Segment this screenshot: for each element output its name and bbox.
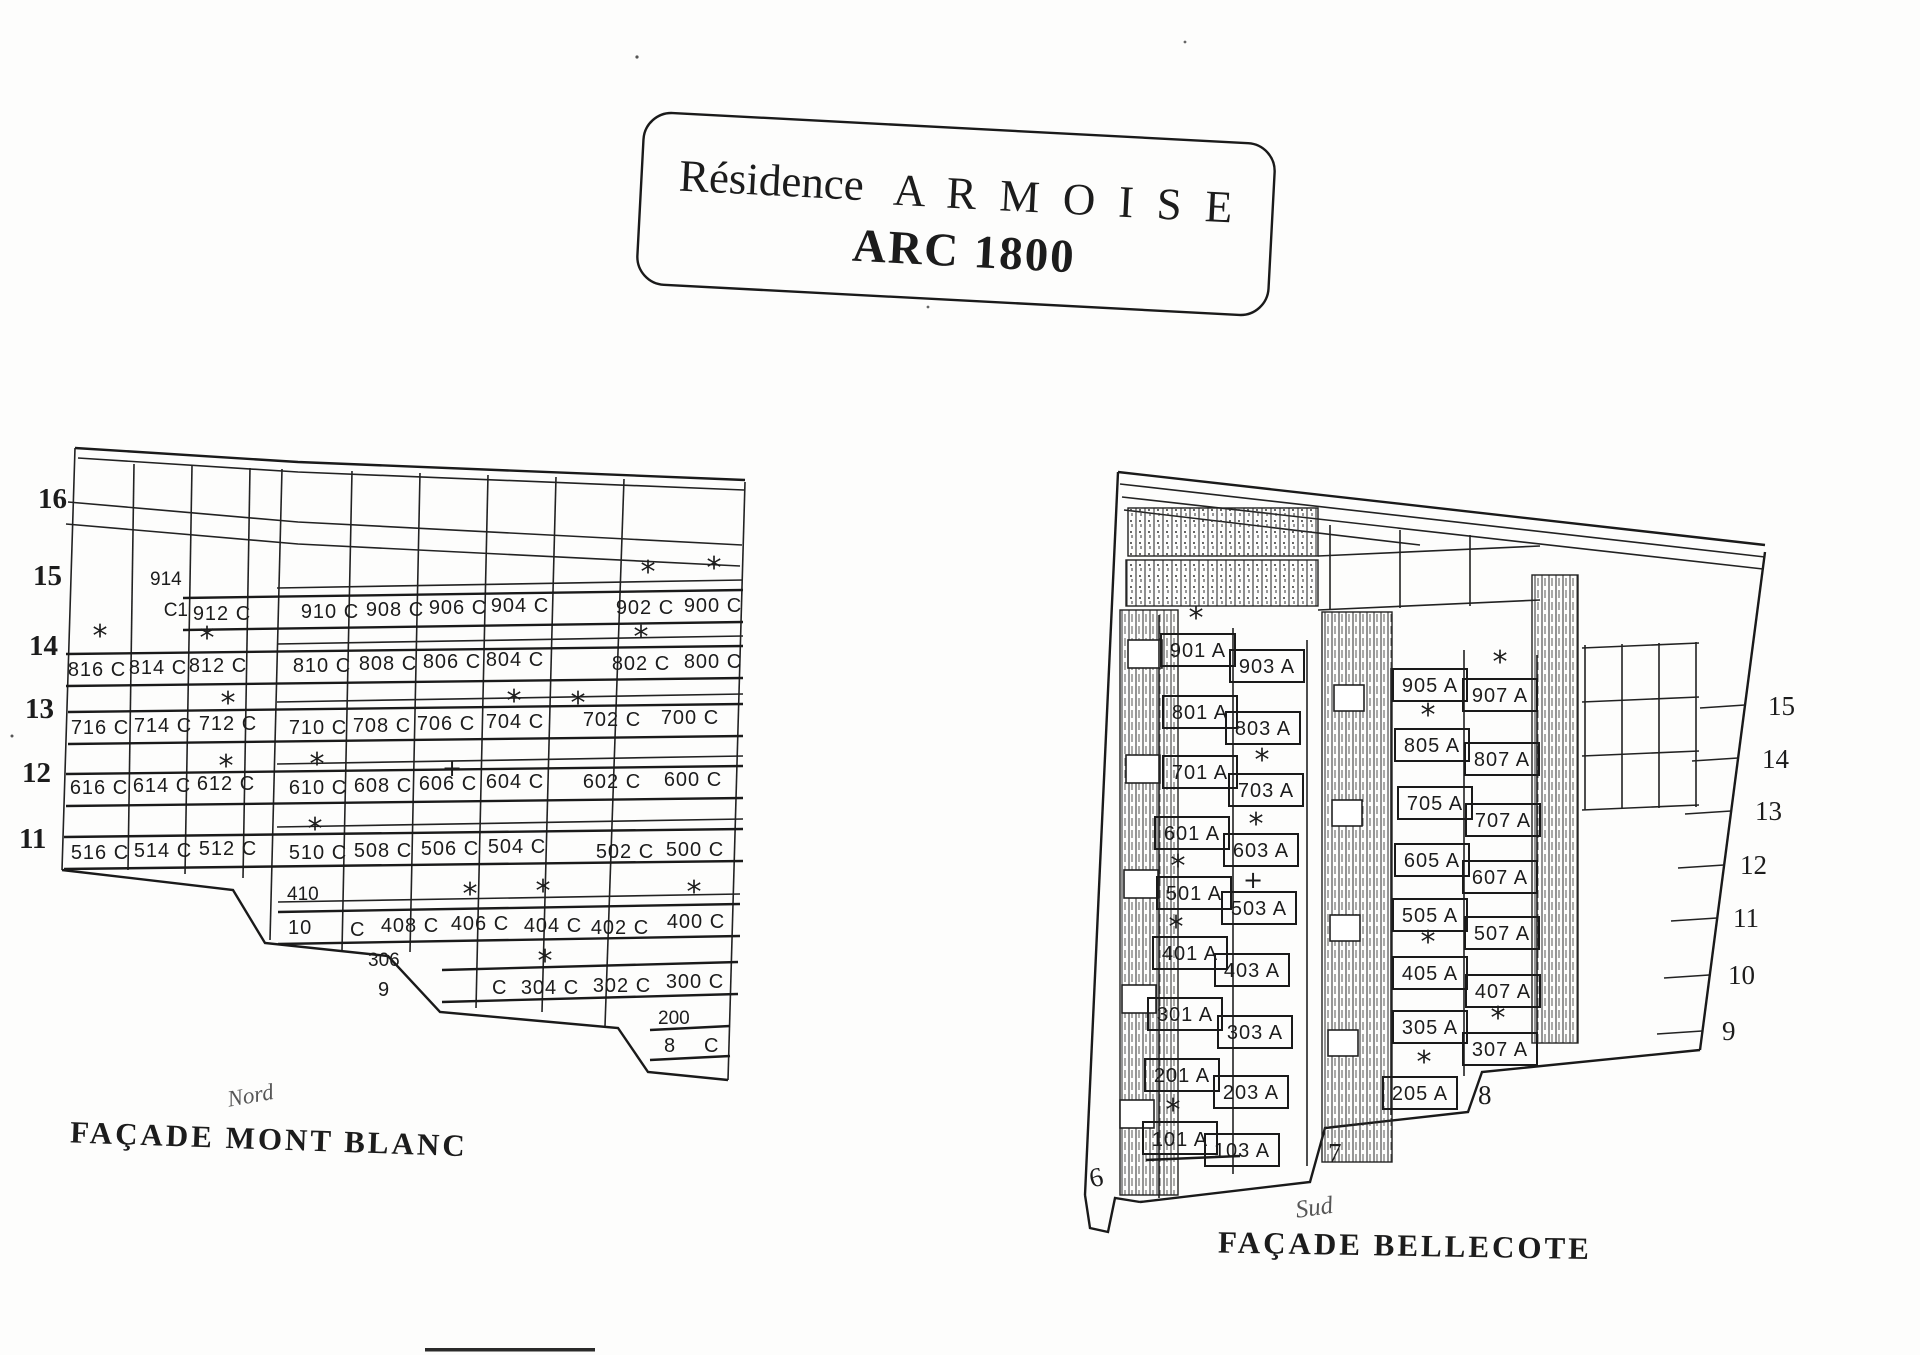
apartment-label: 101 A xyxy=(1152,1129,1208,1151)
apartment-label: 801 A xyxy=(1172,702,1228,724)
apartment-label: 501 A xyxy=(1166,883,1222,905)
floor-label-8: 8 xyxy=(664,1035,676,1057)
scanned-plan-page: Résidence A R M O I S E ARC 1800 xyxy=(0,0,1920,1355)
apartment-label: 508 C xyxy=(354,840,412,862)
apartment-label: 701 A xyxy=(1172,762,1228,784)
apartment-label: 901 A xyxy=(1170,640,1226,662)
apartment-label: 205 A xyxy=(1392,1083,1448,1105)
apartment-label: 514 C xyxy=(134,840,192,862)
apartment-label: 612 C xyxy=(197,773,255,795)
apartment-label: 305 A xyxy=(1402,1017,1458,1039)
star-mark: * xyxy=(536,874,551,909)
apartment-label: 404 C xyxy=(524,915,582,937)
apartment-label: 702 C xyxy=(583,709,641,731)
star-mark: * xyxy=(1189,601,1204,636)
apartment-label: 804 C xyxy=(486,649,544,671)
apartment-label: 903 A xyxy=(1239,656,1295,678)
residence-prefix: Résidence xyxy=(678,150,865,210)
apartment-label: 507 A xyxy=(1474,923,1530,945)
apartment-label: 805 A xyxy=(1404,735,1460,757)
floor-label-13: 13 xyxy=(1755,796,1782,826)
apartment-label: 600 C xyxy=(664,769,722,791)
apartment-label: 303 A xyxy=(1227,1022,1283,1044)
apartment-label: 914 xyxy=(150,569,182,590)
star-mark: * xyxy=(1421,698,1436,733)
apartment-label: 807 A xyxy=(1474,749,1530,771)
suffix-c: C xyxy=(492,977,507,999)
plan-drawing: Résidence A R M O I S E ARC 1800 xyxy=(0,0,1920,1355)
apartment-label: 614 C xyxy=(133,775,191,797)
apartment-label: 203 A xyxy=(1223,1082,1279,1104)
sud-note: Sud xyxy=(1294,1192,1335,1224)
apartment-label: 605 A xyxy=(1404,850,1460,872)
apartment-label: 814 C xyxy=(129,657,187,679)
apartment-label: 712 C xyxy=(199,713,257,735)
apartment-label: 908 C xyxy=(366,599,424,621)
apartment-label: 810 C xyxy=(293,655,351,677)
suffix-c: C xyxy=(704,1035,719,1057)
floor-label-10: 10 xyxy=(288,917,312,939)
apartment-label: 707 A xyxy=(1475,810,1531,832)
apartment-label: 410 xyxy=(287,884,319,905)
apartment-label: 300 C xyxy=(666,971,724,993)
nord-note: Nord xyxy=(224,1079,276,1112)
apartment-label: 601 A xyxy=(1164,823,1220,845)
apartment-label: 103 A xyxy=(1214,1140,1270,1162)
floor-label-9: 9 xyxy=(378,979,390,1001)
floor-label-12: 12 xyxy=(22,757,51,789)
apartment-label: 304 C xyxy=(521,977,579,999)
apartment-label: 905 A xyxy=(1402,675,1458,697)
floor-label-9: 9 xyxy=(1722,1016,1736,1046)
floor-label-14: 14 xyxy=(29,630,58,662)
star-mark: * xyxy=(1255,743,1270,778)
star-mark: * xyxy=(1249,807,1264,842)
facade-bellecote-caption: FAÇADE BELLECOTE xyxy=(1218,1225,1592,1267)
facade-mont-blanc-caption: FAÇADE MONT BLANC xyxy=(70,1114,469,1163)
apartment-label: 700 C xyxy=(661,707,719,729)
apartment-label: 708 C xyxy=(353,715,411,737)
apartment-label: 803 A xyxy=(1235,718,1291,740)
star-mark: * xyxy=(1493,645,1508,680)
apartment-label: 906 C xyxy=(429,597,487,619)
star-mark: * xyxy=(641,555,656,590)
apartment-label: 306 xyxy=(368,950,400,971)
apartment-label: 904 C xyxy=(491,595,549,617)
apartment-label: 816 C xyxy=(68,659,126,681)
plus-mark: + xyxy=(1243,866,1263,894)
star-mark: * xyxy=(1166,1093,1181,1128)
floor-label-8: 8 xyxy=(1478,1080,1492,1110)
apartment-label: 606 C xyxy=(419,773,477,795)
star-mark: * xyxy=(707,551,722,586)
star-mark: * xyxy=(93,619,108,654)
apartment-label: 910 C xyxy=(301,601,359,623)
suffix-c: C xyxy=(350,919,365,941)
star-mark: * xyxy=(1491,1001,1506,1036)
apartment-label: 716 C xyxy=(71,717,129,739)
floor-label-16: 16 xyxy=(38,483,67,515)
apartment-label: 516 C xyxy=(71,842,129,864)
star-mark: * xyxy=(1417,1045,1432,1080)
apartment-label: 506 C xyxy=(421,838,479,860)
apartment-label: 402 C xyxy=(591,917,649,939)
apartment-label: 806 C xyxy=(423,651,481,673)
apartment-label: 604 C xyxy=(486,771,544,793)
apartment-label: 401 A xyxy=(1162,943,1218,965)
apartment-label: 602 C xyxy=(583,771,641,793)
star-mark: * xyxy=(200,621,215,656)
residence-subtitle: ARC 1800 xyxy=(851,220,1077,284)
star-mark: * xyxy=(538,944,553,979)
floor-label-6: 6 xyxy=(1086,1161,1105,1193)
floor-label-14: 14 xyxy=(1762,744,1790,774)
floor-label-12: 12 xyxy=(1740,850,1767,880)
apartment-label: 900 C xyxy=(684,595,742,617)
apartment-label: 616 C xyxy=(70,777,128,799)
apartment-label: 510 C xyxy=(289,842,347,864)
apartment-label: 200 xyxy=(658,1008,690,1029)
apartment-label: 714 C xyxy=(134,715,192,737)
apartment-label: 500 C xyxy=(666,839,724,861)
floor-label-11: 11 xyxy=(1733,903,1759,933)
star-mark: * xyxy=(1171,849,1186,884)
apartment-label: 503 A xyxy=(1231,898,1287,920)
apartment-label: 608 C xyxy=(354,775,412,797)
floor-label-7: 7 xyxy=(1328,1138,1342,1168)
apartment-label: 400 C xyxy=(667,911,725,933)
apartment-label: 406 C xyxy=(451,913,509,935)
title-block: Résidence A R M O I S E ARC 1800 xyxy=(636,112,1276,317)
apartment-label: 703 A xyxy=(1238,780,1294,802)
apartment-label: 301 A xyxy=(1157,1004,1213,1026)
apartment-label: 407 A xyxy=(1475,981,1531,1003)
apartment-label: 408 C xyxy=(381,915,439,937)
apartment-label: C1 xyxy=(164,600,188,621)
apartment-label: 706 C xyxy=(417,713,475,735)
floor-label-15: 15 xyxy=(33,560,62,592)
apartment-label: 610 C xyxy=(289,777,347,799)
facade-bellecote: * 901 A 801 A 701 A 601 A * 501 A * 401 … xyxy=(1085,472,1795,1266)
apartment-label: 603 A xyxy=(1233,840,1289,862)
star-mark: * xyxy=(1169,910,1184,945)
apartment-label: 607 A xyxy=(1472,867,1528,889)
mont-blanc-grid-lines xyxy=(64,464,743,1060)
apartment-label: 302 C xyxy=(593,975,651,997)
floor-label-13: 13 xyxy=(25,693,54,725)
apartment-label: 502 C xyxy=(596,841,654,863)
star-mark: * xyxy=(1421,925,1436,960)
star-mark: * xyxy=(687,875,702,910)
apartment-label: 405 A xyxy=(1402,963,1458,985)
apartment-label: 710 C xyxy=(289,717,347,739)
apartment-label: 505 A xyxy=(1402,905,1458,927)
apartment-label: 902 C xyxy=(616,597,674,619)
star-mark: * xyxy=(463,877,478,912)
apartment-label: 403 A xyxy=(1224,960,1280,982)
apartment-label: 802 C xyxy=(612,653,670,675)
apartment-label: 800 C xyxy=(684,651,742,673)
apartment-label: 201 A xyxy=(1154,1065,1210,1087)
apartment-label: 705 A xyxy=(1407,793,1463,815)
apartment-label: 512 C xyxy=(199,838,257,860)
floor-label-10: 10 xyxy=(1728,960,1755,990)
apartment-label: 704 C xyxy=(486,711,544,733)
apartment-label: 907 A xyxy=(1472,685,1528,707)
star-mark: * xyxy=(634,620,649,655)
apartment-label: 504 C xyxy=(488,836,546,858)
facade-mont-blanc: 16 15 14 13 12 11 914 C1 912 C 910 C 908… xyxy=(19,448,745,1163)
floor-label-15: 15 xyxy=(1768,691,1795,721)
apartment-label: 812 C xyxy=(189,655,247,677)
apartment-label: 808 C xyxy=(359,653,417,675)
apartment-label: 307 A xyxy=(1472,1039,1528,1061)
floor-label-11: 11 xyxy=(19,823,46,855)
residence-name: A R M O I S E xyxy=(892,165,1240,233)
